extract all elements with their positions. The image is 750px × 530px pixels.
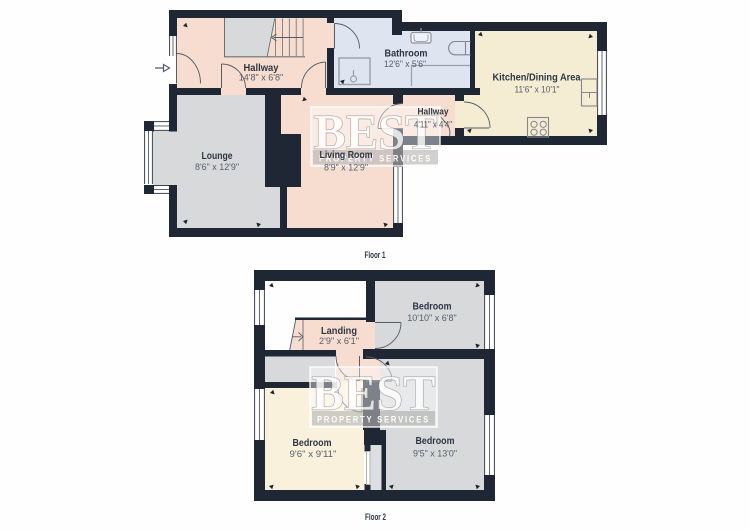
svg-text:11'6" x 10'1": 11'6" x 10'1"	[515, 85, 560, 96]
svg-text:4'11" x 4'4": 4'11" x 4'4"	[414, 120, 452, 130]
svg-text:9'5" x 13'0": 9'5" x 13'0"	[413, 449, 457, 460]
svg-text:Floor 2: Floor 2	[365, 512, 386, 522]
svg-text:9'6" x 9'11": 9'6" x 9'11"	[290, 449, 337, 460]
svg-text:Living Room: Living Room	[320, 150, 373, 161]
svg-text:14'8" x 6'8": 14'8" x 6'8"	[239, 73, 284, 84]
svg-text:Hallway: Hallway	[418, 107, 450, 118]
svg-text:Lounge: Lounge	[202, 151, 233, 162]
svg-text:Bedroom: Bedroom	[293, 438, 332, 449]
svg-text:PROPERTY SERVICES: PROPERTY SERVICES	[317, 415, 430, 426]
svg-text:2'9" x 6'1": 2'9" x 6'1"	[319, 336, 359, 346]
svg-text:Bedroom: Bedroom	[416, 436, 455, 447]
svg-text:Bedroom: Bedroom	[413, 302, 452, 313]
svg-text:8'6" x 12'9": 8'6" x 12'9"	[195, 162, 239, 173]
svg-text:Floor 1: Floor 1	[365, 250, 386, 260]
svg-text:Kitchen/Dining Area: Kitchen/Dining Area	[493, 73, 581, 84]
svg-text:8'9" x 12'9": 8'9" x 12'9"	[324, 163, 368, 174]
svg-text:10'10" x 6'8": 10'10" x 6'8"	[407, 313, 457, 324]
svg-text:12'6" x 5'6": 12'6" x 5'6"	[384, 59, 426, 70]
svg-text:Bathroom: Bathroom	[385, 49, 428, 60]
